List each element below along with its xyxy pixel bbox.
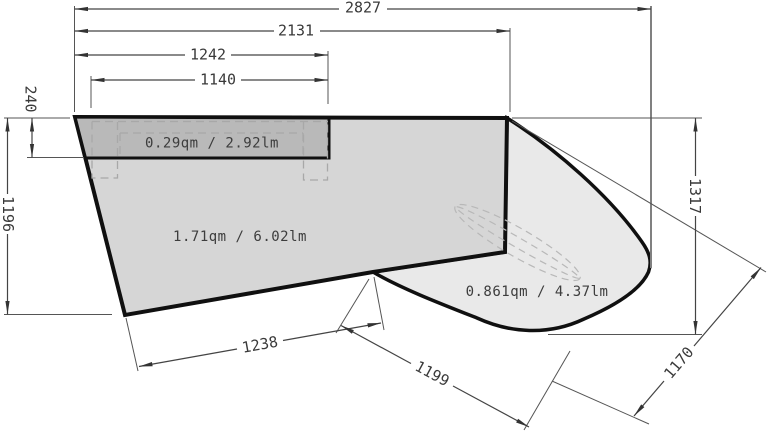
dim-1317-label: 1317 — [686, 178, 704, 214]
dim-1242-label: 1242 — [190, 46, 226, 64]
dimension-1140: 1140 — [91, 71, 328, 89]
dim-1196-label: 1196 — [0, 196, 17, 232]
dimension-2131: 2131 — [75, 22, 511, 40]
dim-2131-label: 2131 — [278, 22, 314, 40]
dimension-1170: 1170 — [634, 268, 761, 417]
dimension-1196: 1196 — [0, 118, 17, 315]
dimension-1238: 1238 — [139, 323, 381, 367]
dim-line — [634, 381, 664, 416]
dim-line — [139, 349, 237, 367]
ext-1238-left — [126, 318, 138, 371]
dimension-1242: 1242 — [75, 46, 329, 64]
ext-1238-right — [374, 277, 384, 330]
dimension-1199: 1199 — [341, 326, 529, 428]
ext-1199-right — [524, 351, 570, 430]
dim-1170-label: 1170 — [660, 343, 697, 382]
dim-1199-label: 1199 — [412, 357, 452, 390]
dimension-2827: 2827 — [75, 0, 652, 17]
dim-1140-label: 1140 — [200, 71, 236, 89]
dim-line — [283, 323, 381, 341]
ext-1199-left — [336, 279, 369, 333]
curved-area-label: 0.861qm / 4.37lm — [466, 284, 609, 300]
dim-240-label: 240 — [21, 85, 39, 112]
dim-2827-label: 2827 — [345, 0, 381, 17]
worktop-area-label: 0.29qm / 2.92lm — [145, 136, 279, 152]
dim-line — [453, 386, 529, 427]
cad-drawing-canvas: 2827 2131 1242 1140 240 1196 1317 1238 — [0, 0, 768, 432]
dim-1238-label: 1238 — [241, 333, 280, 357]
dim-line — [694, 268, 761, 347]
dim-line — [341, 326, 411, 364]
main-area-label: 1.71qm / 6.02lm — [173, 229, 307, 245]
dimension-240: 240 — [21, 85, 39, 157]
dimension-drawing: 2827 2131 1242 1140 240 1196 1317 1238 — [0, 0, 768, 432]
ext-1170-bottom — [552, 381, 649, 424]
